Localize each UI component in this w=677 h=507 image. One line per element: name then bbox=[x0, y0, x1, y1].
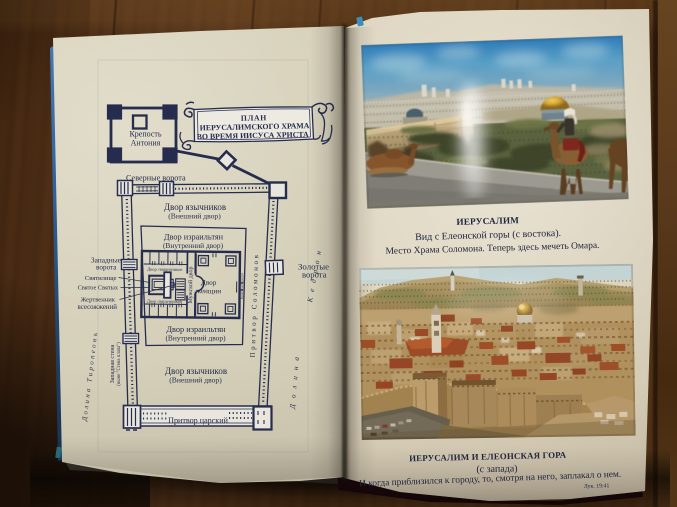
svg-text:Вид с Елеонской горы (с восток: Вид с Елеонской горы (с востока). bbox=[415, 228, 561, 243]
svg-text:Место Храма Соломона. Теперь з: Место Храма Соломона. Теперь здесь мечет… bbox=[385, 241, 599, 257]
svg-text:ИЕРУСАЛИМ: ИЕРУСАЛИМ bbox=[456, 215, 519, 227]
svg-text:Лук. 19:41: Лук. 19:41 bbox=[584, 483, 610, 490]
svg-text:ИЕРУСАЛИМ И ЕЛЕОНСКАЯ ГОРА: ИЕРУСАЛИМ И ЕЛЕОНСКАЯ ГОРА bbox=[409, 450, 567, 464]
